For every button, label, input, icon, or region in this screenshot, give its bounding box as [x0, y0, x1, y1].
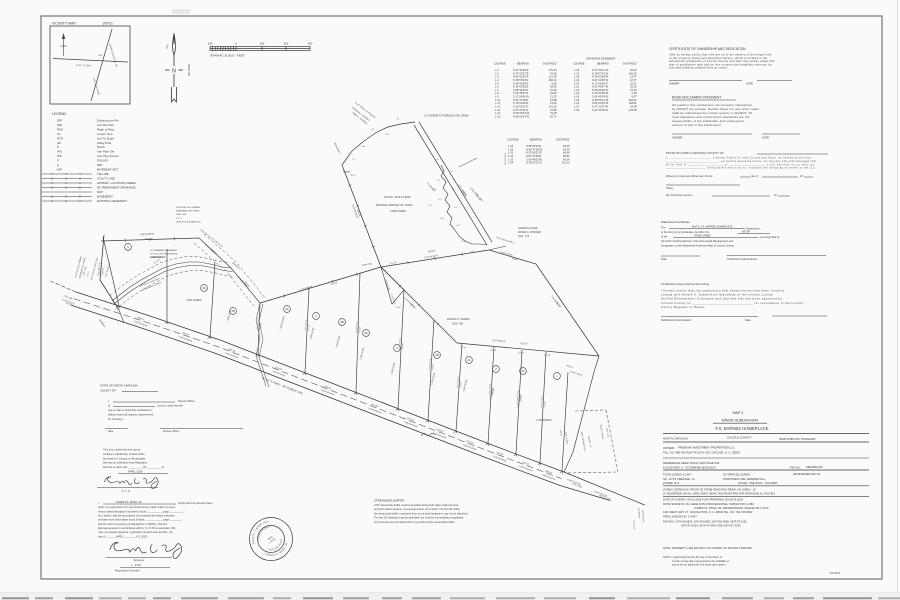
svg-text:#5 REBAR SET: #5 REBAR SET	[97, 167, 118, 171]
svg-text:BEARING: BEARING	[517, 62, 529, 66]
svg-text:NORTH BROOK TOWNSHIP: NORTH BROOK TOWNSHIP	[779, 437, 816, 441]
svg-text:the area of a County or: the area of a County or Municipality	[103, 456, 146, 460]
svg-text:DATE OF SURVEY: 08-22-2025: DATE OF SURVEY: 08-22-2025 PLAT PREPARED…	[663, 498, 744, 502]
svg-text:392.13': 392.13'	[145, 239, 153, 241]
svg-text:N: N	[172, 68, 176, 74]
svg-text:plat was prepared in accor: plat was prepared in accordance with G. …	[98, 526, 176, 530]
svg-text:UP: UP	[57, 141, 61, 145]
svg-text:LUMAN KACKLER: LUMAN KACKLER	[518, 227, 538, 230]
svg-text:3A: 3A	[364, 331, 367, 335]
svg-text:DATE: DATE	[762, 136, 769, 140]
svg-text:Not To Scale: Not To Scale	[97, 136, 114, 140]
svg-text:F.S. BARNES HOMEPLACE: F.S. BARNES HOMEPLACE	[715, 426, 768, 431]
svg-text:OWNER: OWNER	[669, 82, 679, 86]
svg-text:day of _______APRIL________: day of _______APRIL________ A.D. 2025.	[98, 534, 148, 538]
svg-text:P. L. S.: P. L. S.	[122, 489, 130, 493]
svg-text:L-9: L-9	[454, 207, 457, 209]
svg-text:(NTS): (NTS)	[103, 22, 113, 26]
svg-text:R/W: R/W	[97, 190, 103, 194]
svg-text:X: X	[51, 199, 53, 203]
svg-text:that has an ordinance that: that has an ordinance that Regulates	[103, 461, 148, 465]
svg-text:COURSE: COURSE	[507, 138, 519, 142]
svg-text:Date: Date	[745, 318, 751, 322]
svg-text:The: The	[661, 226, 666, 230]
svg-text:N 38°03′12″E: N 38°03′12″E	[526, 161, 542, 165]
svg-text:COUNTY OF: COUNTY OF	[100, 389, 116, 393]
svg-text:TEL. NO. 980-429-3067 PO: TEL. NO. 980-429-3067 PO BOX 135, CROUSE…	[663, 451, 740, 455]
svg-text:PIN NOS. 2674-56-9823, 2674: PIN NOS. 2674-56-9823, 2674-56-6903, 267…	[663, 519, 748, 523]
svg-text:JEREMIAH LEE JONES: JEREMIAH LEE JONES	[176, 210, 200, 213]
svg-text:D: D	[79, 186, 81, 190]
svg-text:A 50' streamside buffer mu: A 50' streamside buffer must be provided…	[374, 503, 459, 507]
svg-text:Date: Date	[661, 257, 667, 261]
svg-text:DISTANCE: DISTANCE	[556, 138, 570, 142]
svg-text:L-8: L-8	[438, 199, 441, 201]
svg-text:the streamside buffer, meas: the streamside buffer, measured from top…	[374, 511, 469, 515]
svg-text:L-6: L-6	[437, 180, 440, 182]
svg-text:The last 20' landward may: The last 20' landward may be disturbed, …	[374, 516, 464, 520]
svg-text:he (or she) is _______________: he (or she) is ____________________ of _…	[666, 163, 814, 166]
svg-text:GRAPHIC SCALE - FEET: GRAPHIC SCALE - FEET	[210, 54, 245, 58]
svg-text:100: 100	[208, 42, 213, 46]
svg-text:affixed meets all statutory: affixed meets all statutory requirements	[108, 413, 154, 417]
svg-text:SET: SET	[97, 163, 103, 167]
svg-text:Lincoln County does not gu: Lincoln County does not guarantee the su…	[672, 560, 729, 563]
svg-text:Subdivision Administrator: Subdivision Administrator	[727, 257, 757, 261]
svg-text:CL INTERSECTION BRANCH AND: CL INTERSECTION BRANCH AND CREEK	[424, 115, 469, 118]
svg-text:NIP: NIP	[57, 167, 62, 171]
svg-text:S: S	[57, 163, 59, 167]
svg-text:178.28': 178.28'	[629, 108, 638, 112]
svg-text:ROAD DISCLAIMER STATEMENT: ROAD DISCLAIMER STATEMENT	[672, 96, 721, 100]
svg-text:FLOOD MAP: X - 371038445: FLOOD MAP: X - 3710384450 (8/18/2007)	[663, 465, 716, 469]
svg-text:Parcels of Land, this ____: Parcels of Land, this __________03______…	[103, 465, 164, 469]
svg-text:of: of	[108, 404, 110, 408]
svg-text:A: A	[79, 181, 81, 185]
svg-text:D: D	[65, 186, 67, 190]
svg-text:L-4: L-4	[436, 159, 439, 161]
svg-text:2674-47-9134, 2674-47-4343,: 2674-47-9134, 2674-47-4343, AND 2674-57-…	[681, 524, 741, 528]
svg-text:map or plat to which this: map or plat to which this certification …	[108, 408, 153, 412]
svg-text:under my supervision from: under my supervision from (an actual sur…	[98, 505, 176, 509]
svg-text:1A: 1A	[521, 369, 524, 373]
svg-text:BEARING: BEARING	[597, 62, 609, 66]
svg-text:200: 200	[284, 42, 289, 46]
svg-text:L-10: L-10	[440, 218, 444, 220]
svg-text:UTILITY LINE: UTILITY LINE	[97, 177, 115, 181]
svg-text:ROSS SURVEYS, PA. GENE ROS: ROSS SURVEYS, PA. GENE ROSS PROFESSIONAL…	[663, 502, 754, 506]
svg-text:as appears on the Watershe: as appears on the Watershed Protection M…	[661, 243, 735, 247]
svg-text:RONALD O. SIMKINS: RONALD O. SIMKINS	[447, 318, 470, 321]
svg-text:PLAT BOOK A PAGE 266: PLAT BOOK A PAGE 266	[176, 220, 202, 223]
svg-text:Iron Pipe Found: Iron Pipe Found	[97, 154, 119, 158]
svg-text:10' RESERVED ON ALL SIDE: 10' RESERVED ON ALL SIDE LINES, REAR, AN…	[663, 492, 775, 496]
svg-text:X: X	[65, 199, 67, 203]
svg-text:etc.) (other); that the bo: etc.) (other); that the boundaries not s…	[98, 514, 175, 518]
svg-text:REBAR: REBAR	[343, 171, 351, 174]
svg-text:73.41': 73.41'	[350, 175, 356, 177]
svg-text:APPROX. LOCATION CREEK: APPROX. LOCATION CREEK	[97, 181, 136, 185]
svg-text:STATE OF NORTH CAROLINA CO: STATE OF NORTH CAROLINA COUNTY OF	[666, 151, 724, 155]
svg-text:IPF: IPF	[57, 154, 62, 158]
svg-text:EXISTING PARCEL NO. 53440: EXISTING PARCEL NO. 53440	[376, 203, 413, 207]
svg-text:A: A	[65, 181, 67, 185]
svg-text:Right of Way: Right of Way	[97, 127, 115, 131]
svg-text:123.22': 123.22'	[562, 161, 571, 165]
svg-text:D: D	[51, 186, 53, 190]
svg-text:1.754 ACRES: 1.754 ACRES	[536, 419, 552, 422]
svg-text:EIP: EIP	[57, 119, 62, 123]
svg-text:______________________________: ______________________________ personall…	[665, 160, 816, 163]
svg-text:DATE: DATE	[746, 82, 753, 86]
svg-text:L-23: L-23	[428, 205, 432, 207]
svg-text:HOWA CREEK: HOWA CREEK	[694, 235, 711, 238]
svg-text:Notary: Notary	[666, 187, 674, 190]
svg-text:1841 - 716: 1841 - 716	[518, 236, 530, 238]
svg-text:FOREST E. ROSS, JR. PROFES: FOREST E. ROSS, JR. PROFESSIONAL SURVEYO…	[694, 506, 769, 510]
svg-text:U: U	[65, 177, 67, 181]
svg-text:2B: 2B	[435, 353, 438, 357]
svg-text:Surveyor: Surveyor	[134, 558, 145, 562]
svg-text:vision) (deed description r: vision) (deed description recorded in Bo…	[98, 509, 184, 513]
svg-text:Certificate of Approval for: Certificate of Approval for Recording	[661, 282, 710, 286]
svg-text:2806 - 400: 2806 - 400	[452, 324, 464, 326]
svg-text:3B: 3B	[340, 320, 343, 324]
svg-text:FIRM LICENSE NO. C-4567: FIRM LICENSE NO. C-4567	[663, 514, 697, 518]
svg-text:E: E	[51, 195, 53, 199]
svg-text:the North Carolina Division: the North Carolina Division of Environme…	[661, 239, 733, 243]
svg-text:My commission expires: My commission expires	[666, 194, 693, 197]
svg-text:Iron Pipe Set: Iron Pipe Set	[97, 150, 115, 154]
svg-text:This is to certify that t: This is to certify that this survey	[103, 448, 141, 452]
svg-text:Registration Number: Registration Number	[115, 569, 140, 573]
svg-text:VICINITY MAP: VICINITY MAP	[52, 22, 76, 26]
svg-text:PIN NO. 2674-57-3690: PIN NO. 2674-57-3690	[384, 195, 411, 199]
svg-text:COURSE: COURSE	[573, 62, 585, 66]
svg-text:NORTH CAROLINA: NORTH CAROLINA	[663, 437, 688, 441]
svg-text:2A: 2A	[467, 358, 470, 362]
svg-text:CRYSTAL LEE CHINNIS: CRYSTAL LEE CHINNIS	[176, 206, 201, 209]
svg-text:OWNER: OWNER	[672, 136, 682, 140]
svg-text:A: A	[51, 181, 53, 185]
svg-text:NTS: NTS	[57, 136, 63, 140]
svg-text:Date: Date	[108, 430, 114, 433]
svg-text:MOSES G. WHICKER: MOSES G. WHICKER	[518, 232, 541, 234]
svg-text:MAP 2, F.S. BARNES HOMEPLACE: MAP 2, F.S. BARNES HOMEPLACE	[692, 226, 733, 229]
svg-text:PIN NO.: PIN NO.	[790, 465, 801, 469]
svg-text:day of: day of	[751, 175, 758, 178]
svg-text:Utility Pole: Utility Pole	[97, 141, 112, 145]
svg-text:L-7: L-7	[452, 189, 455, 191]
svg-text:ZONING SETBACKS: FRONT 30': ZONING SETBACKS: FRONT 30' FROM ROAD R/W…	[663, 487, 757, 491]
svg-text:Watershed Certificate: Watershed Certificate	[661, 220, 690, 224]
svg-text:L-15: L-15	[495, 114, 501, 118]
svg-text:APRIL 2026: APRIL 2026	[128, 470, 143, 474]
svg-text:Review Officer: Review Officer	[178, 399, 195, 403]
svg-text:X: X	[79, 199, 81, 203]
svg-text:1181 WEST HWY. 27, LINCOLN: 1181 WEST HWY. 27, LINCOLNTON, N. C. 280…	[663, 510, 753, 514]
svg-text:1455 - 892: 1455 - 892	[176, 214, 187, 216]
svg-text:R/W: R/W	[57, 127, 63, 131]
svg-text:CL: CL	[57, 132, 61, 136]
svg-text:Center Line: Center Line	[97, 132, 113, 136]
svg-text:of the: of the	[661, 235, 668, 239]
svg-text:63.30': 63.30'	[396, 307, 402, 309]
svg-text:IPS: IPS	[57, 150, 62, 154]
svg-text:L-11: L-11	[456, 225, 460, 227]
svg-text:SEE BELOW: SEE BELOW	[806, 465, 823, 469]
svg-text:______________________, being: ______________________, being authorized…	[665, 167, 817, 170]
svg-text:any lot for the placement: any lot for the placement of a septic ta…	[672, 564, 726, 567]
svg-text:2674-56-6903: 2674-56-6903	[505, 152, 507, 165]
svg-text:E NC 27 HWY: E NC 27 HWY	[76, 64, 92, 68]
svg-text:SCALE: ONE INCH - 100 FEE: SCALE: ONE INCH - 100 FEET	[738, 481, 778, 485]
svg-text:DRAINAGE EASEMENT: DRAINAGE EASEMENT	[586, 57, 616, 61]
svg-text:ER 8219: ER 8219	[830, 571, 841, 575]
svg-text:that the ratio of precisio: that the ratio of precision as calculate…	[98, 522, 168, 526]
svg-text:1.257 ACRES: 1.257 ACRES	[186, 299, 202, 302]
svg-text:to the best of my knowled: to the best of my knowledge, lie within …	[661, 230, 710, 234]
svg-text:as drawn from information: as drawn from information found in Book …	[98, 518, 182, 522]
svg-text:L-5: L-5	[450, 171, 453, 173]
svg-text:County, certify that the: County, certify that the	[157, 404, 183, 408]
svg-text:MINOR SUBDIVISION: MINOR SUBDIVISION	[722, 419, 759, 423]
svg-text:DISTANCE: DISTANCE	[543, 62, 557, 66]
svg-text:N 88°25′14″W: N 88°25′14″W	[513, 114, 530, 118]
svg-text:L-34: L-34	[508, 161, 514, 165]
svg-text:100: 100	[260, 42, 265, 46]
svg-text:NC GRID: NC GRID	[187, 64, 191, 76]
svg-text:E: E	[65, 195, 67, 199]
svg-text:Existing Iron Pin: Existing Iron Pin	[97, 119, 119, 123]
svg-text:OWNER:: OWNER:	[663, 446, 675, 450]
svg-text:DISTANCE: DISTANCE	[623, 62, 637, 66]
svg-text:4.508 ACRES: 4.508 ACRES	[390, 209, 406, 213]
svg-text:LEGEND:: LEGEND:	[52, 112, 67, 116]
svg-text:EXISTING CEMETERY: EXISTING CEMETERY	[97, 199, 127, 203]
svg-text:ZONED: R-S: ZONED: R-S	[663, 481, 679, 485]
svg-text:P: P	[57, 145, 59, 149]
svg-text:BEARING: BEARING	[530, 138, 542, 142]
svg-text:Porch: Porch	[97, 145, 105, 149]
svg-text:40.71': 40.71'	[550, 114, 557, 118]
svg-text:Subdivision Administrator: Subdivision Administrator	[661, 318, 691, 322]
svg-text:S 41°32′26″W: S 41°32′26″W	[592, 108, 609, 112]
svg-text:ness my original signature,: ness my original signature, registration…	[98, 530, 174, 534]
svg-text:certify that this plat was: certify that this plat was drawn	[178, 501, 213, 505]
svg-text:F: F	[57, 159, 59, 163]
svg-text:2.285 ACRES: 2.285 ACRES	[150, 256, 166, 259]
svg-text:EASEMENT: EASEMENT	[97, 195, 113, 199]
svg-text:L-28: L-28	[574, 108, 580, 112]
svg-text:size and building setback line: size and building setback lines as noted…	[669, 66, 728, 70]
svg-text:4A: 4A	[285, 307, 288, 311]
svg-text:County Register of Deeds.: County Register of Deeds.	[661, 305, 705, 309]
svg-text:E: E	[79, 195, 81, 199]
svg-text:Review Officer: Review Officer	[163, 430, 179, 433]
svg-text:creates a subdivision of l: creates a subdivision of land within	[103, 452, 145, 456]
svg-text:L-12: L-12	[461, 241, 465, 243]
svg-text:as designated by: as designated by	[760, 235, 780, 239]
svg-text:COURSE: COURSE	[494, 62, 506, 66]
svg-text:30' PERMANENT DRAINAGE: 30' PERMANENT DRAINAGE	[97, 186, 136, 190]
svg-text:300: 300	[308, 42, 313, 46]
svg-text:MAP 2: MAP 2	[733, 411, 744, 415]
svg-text:TIE LINE: TIE LINE	[97, 172, 109, 176]
svg-text:FOUND: FOUND	[97, 159, 108, 163]
svg-text:L - 3720: L - 3720	[131, 563, 141, 567]
svg-text:SITE: SITE	[98, 55, 103, 57]
svg-text:owners of lots in the sub: owners of lots in the subdivision.	[672, 123, 722, 127]
svg-text:and intermittent streams, a: and intermittent streams, as measured fr…	[374, 507, 460, 511]
svg-text:S 86°42′36″E: S 86°42′36″E	[140, 233, 155, 237]
svg-text:No structures are permitted: No structures are permitted within any p…	[374, 520, 455, 524]
svg-text:CERTIFICATE OF OWNERSHIP AN: CERTIFICATE OF OWNERSHIP AND DEDICATION	[669, 47, 746, 51]
svg-text:U: U	[51, 177, 53, 181]
svg-text:NOTE: PROPERTY LIES WITHIN: NOTE: PROPERTY LIES WITHIN A VOLUNTARY A…	[663, 546, 752, 550]
svg-text:LINCOLN COUNTY: LINCOLN COUNTY	[727, 436, 752, 440]
svg-text:STATE OF NORTH CAROLINA: STATE OF NORTH CAROLINA	[100, 384, 138, 388]
svg-text:WS-SF: WS-SF	[742, 231, 751, 234]
svg-text:30' DRAINAGE EASEMENT: 30' DRAINAGE EASEMENT	[150, 249, 178, 252]
svg-text:LOT 1: LOT 1	[176, 218, 183, 220]
svg-text:WATERSHED:WS-SF: WATERSHED:WS-SF	[793, 472, 821, 476]
svg-text:IRS: IRS	[57, 123, 62, 127]
svg-text:U: U	[79, 177, 81, 181]
svg-text:Witness my hand and offici: Witness my hand and official seal, this …	[666, 175, 713, 178]
svg-text:5A: 5A	[202, 286, 205, 290]
svg-text:Iron Rod Set: Iron Rod Set	[97, 123, 114, 127]
svg-text:FOREST E. ROSS, JR: FOREST E. ROSS, JR	[116, 501, 142, 504]
svg-text:PREMIUM INVESTMENT PROPERTIE: PREMIUM INVESTMENT PROPERTIES LLC	[678, 446, 735, 450]
svg-text:STREAMSIDE BUFFER: STREAMSIDE BUFFER	[374, 499, 404, 503]
svg-text:NOTE: In approving this pl: NOTE: In approving this plat, the City o…	[663, 556, 722, 559]
svg-text:I, _______________________, a: I, _______________________, a Notary Pub…	[666, 157, 811, 160]
svg-text:for recording.: for recording.	[108, 417, 124, 421]
